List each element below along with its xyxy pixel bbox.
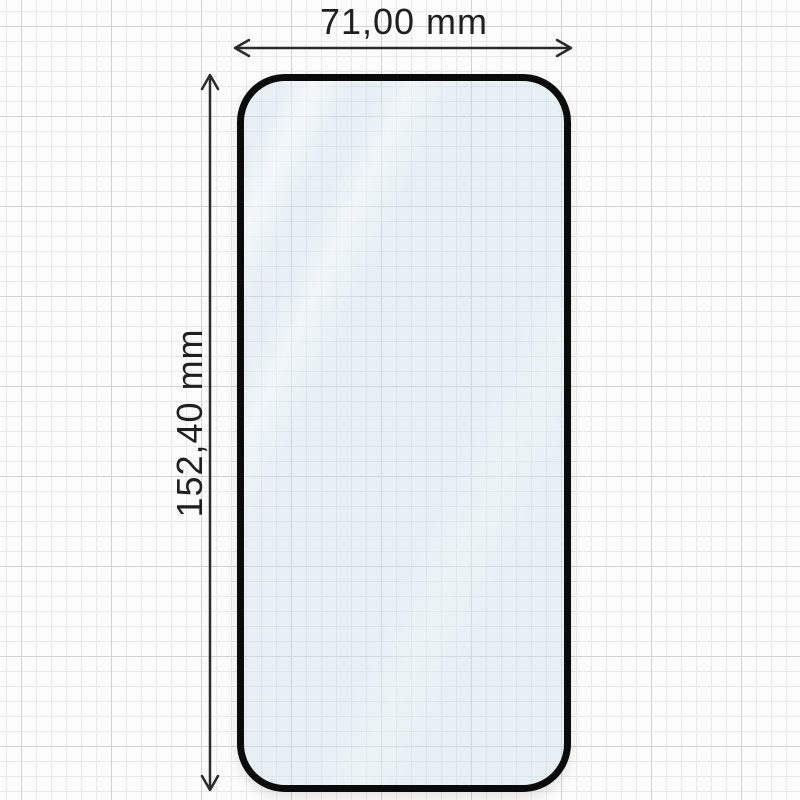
height-dimension-label: 152,40 mm [169, 328, 211, 517]
screen-protector-glass [237, 74, 571, 792]
width-dimension-label: 71,00 mm [237, 1, 571, 43]
dimension-diagram: 71,00 mm 152,40 mm [0, 0, 800, 800]
glass-reflection [244, 81, 564, 785]
